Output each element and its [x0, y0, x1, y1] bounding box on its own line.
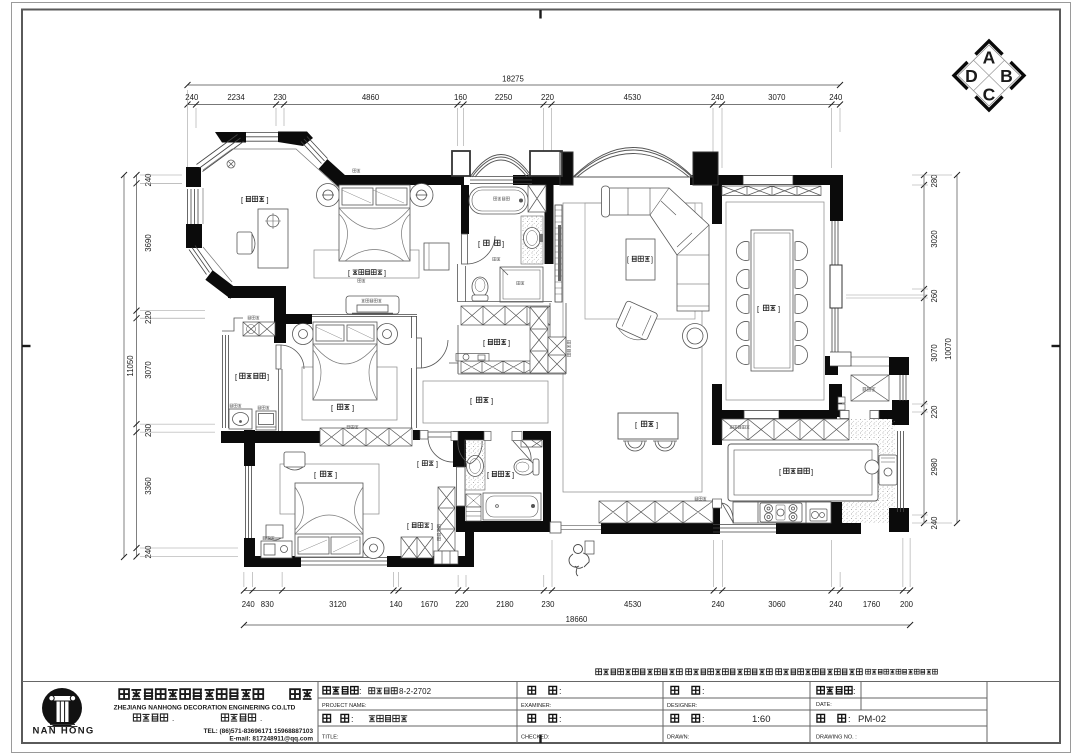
svg-text:220: 220 [455, 600, 469, 609]
svg-text:240: 240 [829, 93, 843, 102]
svg-text:PROJECT NAME:: PROJECT NAME: [322, 703, 367, 709]
svg-text:160: 160 [454, 93, 468, 102]
svg-text:2180: 2180 [496, 600, 514, 609]
svg-text:DESIGNER:: DESIGNER: [667, 703, 698, 709]
svg-text:10070: 10070 [944, 337, 953, 359]
svg-text:TITLE:: TITLE: [322, 735, 339, 741]
svg-text:240: 240 [242, 600, 256, 609]
svg-text:230: 230 [273, 93, 287, 102]
svg-text:140: 140 [389, 600, 403, 609]
svg-text::: : [559, 714, 562, 724]
svg-text:[: [ [348, 271, 350, 278]
svg-text::: : [702, 686, 705, 696]
svg-text:260: 260 [930, 289, 939, 303]
svg-text:280: 280 [930, 174, 939, 188]
svg-text:PM-02: PM-02 [858, 714, 886, 725]
svg-text:]: ] [491, 397, 493, 406]
svg-text:]: ] [508, 339, 510, 348]
svg-text:3060: 3060 [768, 600, 786, 609]
svg-text:]: ] [436, 462, 438, 469]
svg-text:]: ] [267, 373, 269, 382]
svg-text:230: 230 [541, 600, 555, 609]
svg-text:3120: 3120 [329, 600, 347, 609]
svg-text:220: 220 [144, 310, 153, 324]
svg-text:3070: 3070 [930, 344, 939, 362]
svg-text::: : [559, 686, 562, 696]
svg-text:]: ] [267, 196, 269, 205]
svg-text:3070: 3070 [144, 361, 153, 379]
svg-text::: : [359, 686, 362, 696]
svg-text:DRAWING NO. :: DRAWING NO. : [816, 735, 857, 741]
svg-text:220: 220 [541, 93, 555, 102]
svg-text:]: ] [384, 271, 386, 278]
svg-text:TEL: (86)571-83696171 15968: TEL: (86)571-83696171 15968887103 [204, 728, 314, 735]
svg-text:830: 830 [261, 600, 275, 609]
svg-text:]: ] [778, 305, 780, 314]
svg-text:220: 220 [930, 405, 939, 419]
svg-text:3690: 3690 [144, 234, 153, 252]
svg-text:]: ] [512, 471, 514, 480]
svg-text::: : [853, 686, 856, 696]
svg-text:EXAMINER:: EXAMINER: [521, 703, 552, 709]
svg-text:18275: 18275 [502, 75, 524, 84]
svg-text:1760: 1760 [863, 600, 881, 609]
svg-text:2250: 2250 [495, 93, 513, 102]
svg-text:200: 200 [900, 600, 914, 609]
svg-text:[: [ [627, 257, 629, 264]
svg-text:ZHEJIANG NANHONG DECORATION: ZHEJIANG NANHONG DECORATION ENGINERING C… [114, 705, 296, 712]
svg-text:3070: 3070 [768, 93, 786, 102]
svg-text:8-2-2702: 8-2-2702 [399, 687, 432, 696]
svg-text:B: B [1000, 66, 1013, 86]
svg-text:]: ] [656, 421, 658, 430]
svg-text::: : [351, 714, 354, 724]
svg-text:240: 240 [711, 93, 725, 102]
svg-text:2234: 2234 [227, 93, 245, 102]
svg-text:.: . [172, 714, 174, 723]
svg-text:]: ] [651, 257, 653, 264]
svg-text:DATE:: DATE: [816, 702, 832, 708]
svg-text:A: A [983, 48, 996, 68]
svg-text:]: ] [431, 524, 433, 531]
svg-text:]: ] [335, 471, 337, 480]
svg-text:240: 240 [711, 600, 725, 609]
svg-text:DRAWN:: DRAWN: [667, 735, 690, 741]
svg-text:D: D [965, 66, 978, 86]
svg-text:230: 230 [144, 423, 153, 437]
svg-text:11050: 11050 [126, 355, 135, 377]
svg-text:C: C [983, 85, 996, 105]
svg-text:[: [ [407, 524, 409, 531]
svg-text:NAN HONG: NAN HONG [32, 726, 94, 737]
svg-text:4530: 4530 [624, 600, 642, 609]
svg-text::: : [848, 714, 851, 724]
svg-text:4530: 4530 [624, 93, 642, 102]
svg-text:]: ] [811, 468, 813, 477]
svg-text:2980: 2980 [930, 458, 939, 476]
svg-text::: : [702, 714, 705, 724]
svg-text:1670: 1670 [421, 600, 439, 609]
svg-text:4860: 4860 [362, 93, 380, 102]
svg-text:]: ] [352, 404, 354, 413]
svg-text:3020: 3020 [930, 230, 939, 248]
svg-text:]: ] [502, 240, 504, 249]
svg-text:CHECKED:: CHECKED: [521, 735, 550, 741]
svg-text:240: 240 [829, 600, 843, 609]
svg-text:.: . [260, 714, 262, 723]
svg-text:1:60: 1:60 [752, 714, 771, 725]
svg-text:[: [ [417, 462, 419, 469]
svg-text:18660: 18660 [566, 615, 588, 624]
svg-text:240: 240 [930, 516, 939, 530]
svg-text:E-mail: 817248911@qq.com: E-mail: 817248911@qq.com [229, 736, 313, 743]
svg-text:3360: 3360 [144, 477, 153, 495]
